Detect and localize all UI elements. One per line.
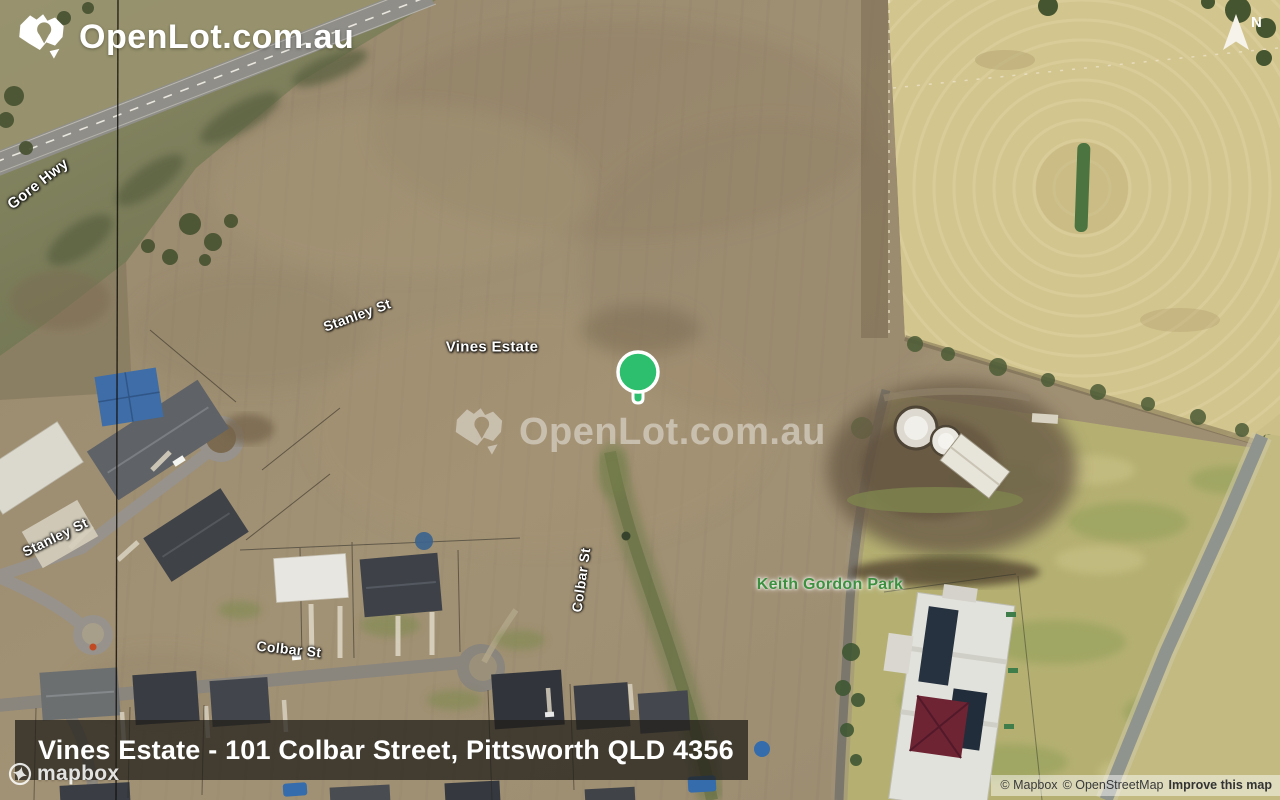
north-label: N bbox=[1251, 14, 1262, 31]
mapbox-wordmark: mapbox bbox=[37, 762, 119, 786]
attribution-bar: © Mapbox © OpenStreetMap Improve this ma… bbox=[991, 775, 1280, 796]
address-banner: Vines Estate - 101 Colbar Street, Pittsw… bbox=[15, 720, 748, 780]
openlot-logo-icon bbox=[16, 12, 68, 62]
address-banner-text: Vines Estate - 101 Colbar Street, Pittsw… bbox=[38, 735, 734, 766]
attribution-osm-link[interactable]: © OpenStreetMap bbox=[1063, 778, 1164, 792]
mapbox-logo[interactable]: mapbox bbox=[8, 762, 119, 786]
mapbox-icon bbox=[8, 762, 32, 786]
attribution-mapbox-link[interactable]: © Mapbox bbox=[1000, 778, 1057, 792]
improve-this-map-link[interactable]: Improve this map bbox=[1169, 778, 1273, 792]
openlot-map-view[interactable]: Gore Hwy Stanley St Vines Estate Stanley… bbox=[0, 0, 1280, 800]
north-arrow-icon: N bbox=[1218, 10, 1266, 54]
openlot-logo-text: OpenLot.com.au bbox=[79, 18, 354, 57]
openlot-logo[interactable]: OpenLot.com.au bbox=[16, 12, 354, 62]
location-pin-icon[interactable] bbox=[612, 346, 664, 408]
